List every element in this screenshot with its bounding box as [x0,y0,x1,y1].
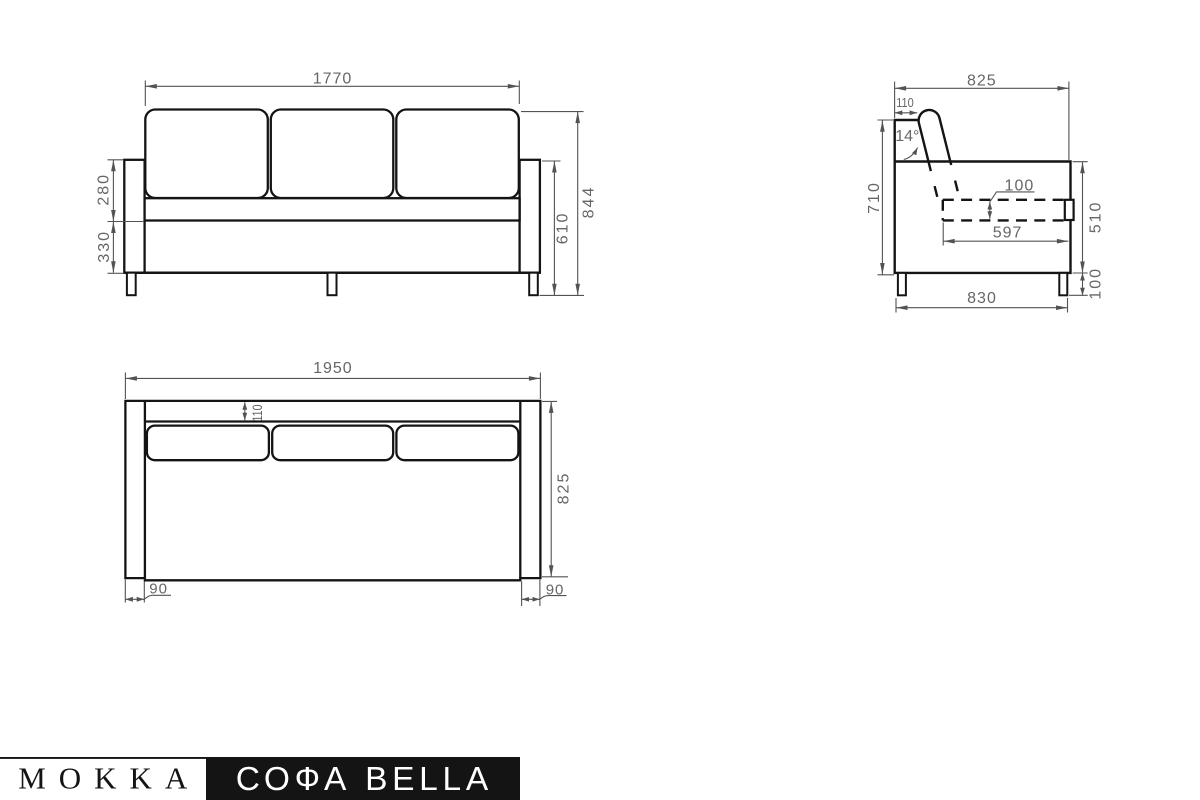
svg-text:100: 100 [1088,267,1105,300]
svg-text:825: 825 [556,472,573,505]
svg-text:MOKKA: MOKKA [18,760,200,795]
svg-text:14°: 14° [895,128,919,145]
svg-text:710: 710 [866,181,883,214]
svg-text:597: 597 [993,225,1023,242]
svg-text:510: 510 [1088,201,1105,234]
svg-text:СОФА BELLA: СОФА BELLA [236,761,493,798]
svg-text:280: 280 [96,173,113,206]
svg-text:110: 110 [896,95,914,110]
svg-text:330: 330 [96,230,113,263]
svg-text:825: 825 [967,72,997,89]
svg-text:1950: 1950 [313,360,353,377]
svg-text:90: 90 [546,581,565,598]
svg-text:610: 610 [555,212,572,245]
svg-text:90: 90 [149,581,168,598]
svg-text:100: 100 [1005,178,1035,195]
svg-text:1770: 1770 [313,71,353,88]
svg-text:110: 110 [250,405,265,422]
svg-text:844: 844 [581,186,598,219]
svg-text:830: 830 [967,290,997,307]
